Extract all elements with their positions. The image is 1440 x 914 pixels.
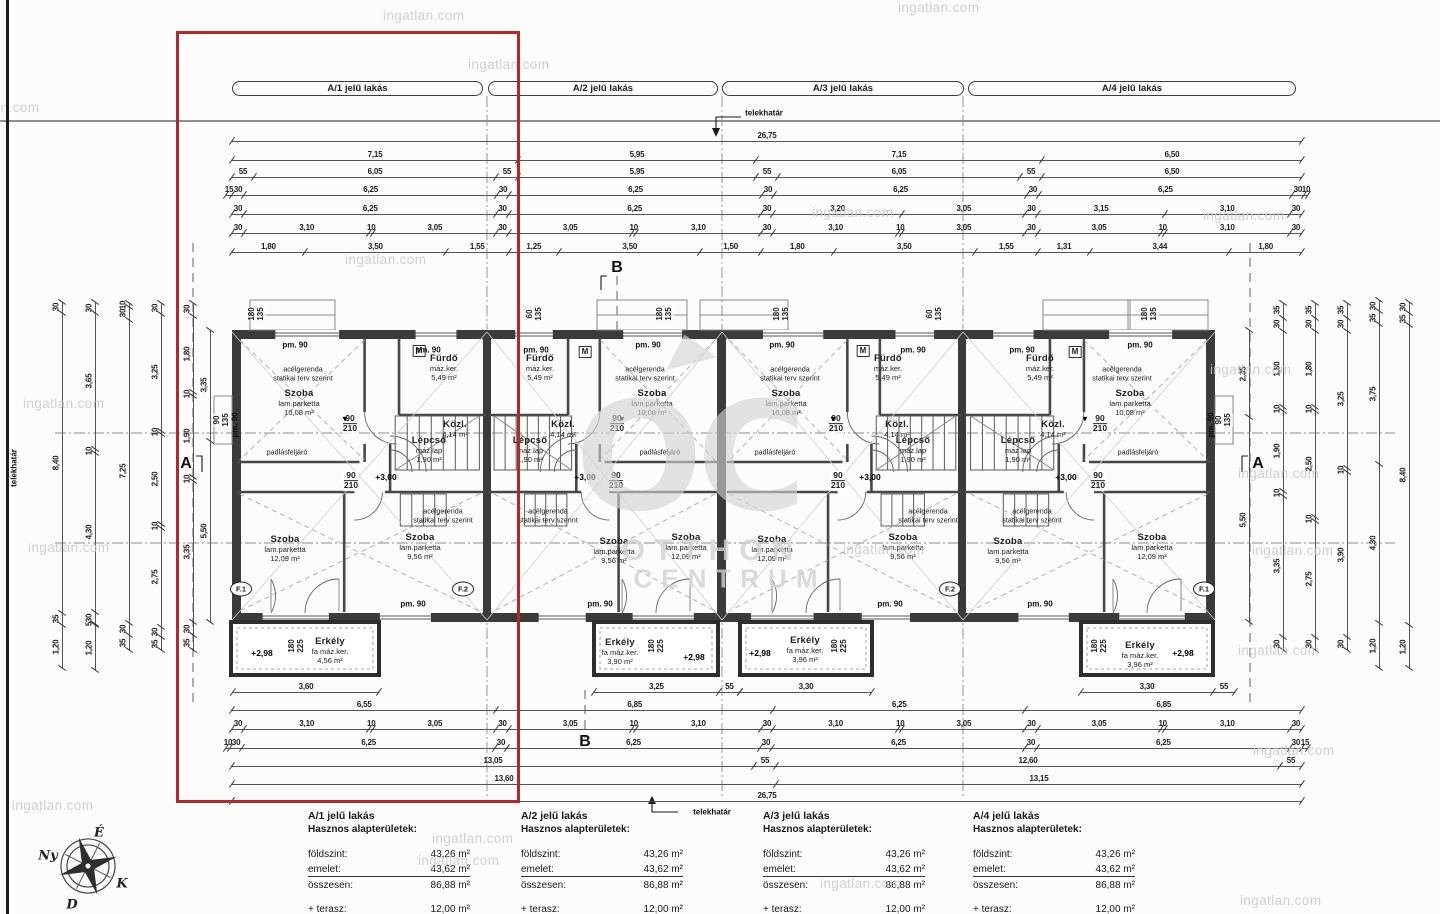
watermark-text: ingatlan.com — [1238, 466, 1319, 481]
dim-value: 30 — [151, 304, 160, 313]
section-marker: B — [579, 733, 591, 751]
dim-value: 26,75 — [757, 791, 776, 800]
dim-value: 55 — [725, 682, 734, 691]
property-line-label-top: telekhatár — [745, 109, 783, 118]
window-size-tag: 180225 — [1091, 639, 1109, 652]
legend-row-value: 12,00 m² — [431, 904, 470, 914]
unit-bar-label: A/2 jelű lakás — [489, 83, 717, 94]
dim-value: 10 — [1305, 405, 1314, 414]
room-label: Fürdőmáz.ker.5,49 m² — [874, 354, 902, 382]
stair-winder-arc — [1037, 450, 1059, 472]
dim-value: 10 — [1158, 223, 1167, 232]
room-label: Lépcsőmáz.lap1,90 m² — [1001, 436, 1035, 464]
dim-value: 30 — [1292, 204, 1301, 213]
dim-value: 8,40 — [52, 455, 61, 470]
window-size-tag: 180225 — [648, 639, 666, 652]
dim-value: 30 — [1029, 185, 1038, 194]
dim-value: 1,90 — [1273, 444, 1282, 459]
window-gap — [993, 330, 1033, 339]
compass-west-label: Ny — [38, 849, 57, 864]
dim-value: 2,75 — [1305, 572, 1314, 587]
legend-subtitle: Hasznos alapterületek: — [973, 824, 1135, 835]
stair-winder-arc — [871, 450, 893, 472]
highlight-unit-a1-box — [176, 31, 520, 803]
legend-row: + terasz:12,00 m² — [521, 904, 683, 914]
dim-value: 26,75 — [757, 131, 776, 140]
window-gap — [763, 330, 823, 339]
legend-row-key: földszint: — [973, 849, 1012, 860]
compass-north-label: É — [94, 826, 104, 841]
legend-row-key: földszint: — [308, 849, 347, 860]
dim-value: 30 — [1027, 738, 1036, 747]
legend-row-value: 43,26 m² — [886, 849, 925, 860]
legend-title: A/1 jelű lakás — [308, 810, 470, 822]
dim-value: 3,90 — [1337, 547, 1346, 562]
leader-arrow-icon — [648, 796, 656, 804]
balcony-door-arc — [622, 579, 627, 613]
legend-row-key: + terasz: — [521, 904, 560, 914]
property-line-label-bottom: telekhatár — [693, 808, 731, 817]
dim-line-vertical — [129, 303, 130, 650]
legend-row-value: 43,62 m² — [1096, 864, 1135, 875]
dim-value: 10 — [896, 223, 905, 232]
note-label: acélgerendastatikai terv szerint — [898, 507, 958, 524]
legend-block-a2: A/2 jelű lakásHasznos alapterületek:föld… — [521, 810, 683, 914]
legend-title: A/3 jelű lakás — [763, 810, 925, 822]
stair-winder-arc — [554, 450, 576, 472]
dim-value: 30 — [151, 628, 160, 637]
beam-arrow-icon: ▼ — [1081, 415, 1089, 424]
dim-line-vertical — [1409, 302, 1410, 668]
dim-value: 10 — [1273, 489, 1282, 498]
level-marker: +3,00 — [1055, 472, 1077, 482]
dim-value: 10 — [1302, 185, 1311, 194]
leader-arrow-icon — [712, 128, 720, 137]
legend-subtitle: Hasznos alapterületek: — [521, 824, 683, 835]
detail-marker: F.2 — [939, 582, 961, 597]
dim-value: 10 — [630, 719, 639, 728]
legend-row-value: 43,62 m² — [644, 864, 683, 875]
legend-row: + terasz:12,00 m² — [763, 904, 925, 914]
legend-row-key: összesen: — [308, 880, 353, 891]
dim-value: 5,95 — [630, 150, 645, 159]
dim-line-vertical — [95, 302, 96, 670]
legend-row: + terasz:12,00 m² — [973, 904, 1135, 914]
room-label: Fürdőmáz.ker.5,49 m² — [1026, 354, 1054, 382]
dim-value: 3,05 — [1092, 223, 1107, 232]
washer-tag: M — [1069, 346, 1082, 358]
dim-value: 30 — [1292, 719, 1301, 728]
room-label: Szobalam.parketta10,08 m² — [1109, 389, 1150, 417]
dim-value: 6,85 — [627, 700, 642, 709]
dim-value: 1,80 — [1258, 242, 1273, 251]
legend-row-value: 86,88 m² — [644, 880, 683, 891]
legend-title: A/2 jelű lakás — [521, 810, 683, 822]
dim-value: 3,25 — [151, 365, 160, 380]
dim-value: 6,25 — [1158, 185, 1173, 194]
room-label: Közl.4,14 m² — [550, 420, 575, 440]
lintel-tag: pm. 90 — [1009, 346, 1034, 355]
watermark-text: ingatlan.com — [1252, 543, 1333, 558]
note-label: padlásfeljáró — [1118, 449, 1159, 458]
dim-value: 6,25 — [627, 204, 642, 213]
dim-value: 3,10 — [1220, 719, 1235, 728]
legend-rows: földszint:43,26 m²emelet:43,62 m²összese… — [521, 849, 683, 914]
dim-value: 10 — [151, 522, 160, 531]
window-size-tag: 90135 — [1215, 413, 1233, 426]
legend-row: + terasz:12,00 m² — [308, 904, 470, 914]
dim-value: 35 — [1305, 306, 1314, 315]
legend-row: összesen:86,88 m² — [521, 880, 683, 892]
compass-east-label: K — [116, 877, 127, 892]
dim-value: 30 — [763, 719, 772, 728]
legend-subtitle: Hasznos alapterületek: — [763, 824, 925, 835]
window-size-tag: 60135 — [526, 307, 544, 320]
floorplan-sheet: OC OTTHON CENTRUM É Ny K D telekhatár te… — [0, 0, 1440, 914]
dim-value: 6,25 — [1156, 738, 1171, 747]
legend-block-a4: A/4 jelű lakásHasznos alapterületek:föld… — [973, 810, 1135, 914]
door-swing-arc — [1066, 492, 1094, 520]
legend-row-value: 12,00 m² — [1096, 904, 1135, 914]
legend-row: földszint:43,26 m² — [763, 849, 925, 861]
legend-row: földszint:43,26 m² — [521, 849, 683, 861]
dim-value: 3,30 — [799, 682, 814, 691]
watermark-text: ingatlan.com — [1210, 362, 1291, 377]
level-marker: +2,98 — [683, 652, 705, 662]
dim-value: 3,05 — [956, 719, 971, 728]
dim-value: 1,55 — [999, 242, 1014, 251]
dim-value: 1,50 — [723, 242, 738, 251]
legend-row: összesen:86,88 m² — [973, 880, 1135, 892]
dim-value: 30 — [85, 303, 94, 312]
watermark-text: ingatlan.com — [812, 205, 893, 220]
dim-value: 30 — [1027, 719, 1036, 728]
legend-row-key: + terasz: — [973, 904, 1012, 914]
dim-value: 55 — [1220, 682, 1229, 691]
dim-value: 30 — [1337, 639, 1346, 648]
photo-left-edge — [6, 0, 9, 914]
window-size-tag: 180135 — [1141, 307, 1159, 320]
dim-value: 3,65 — [85, 374, 94, 389]
dim-line-vertical — [1347, 303, 1348, 650]
dim-value: 1,20 — [1369, 638, 1378, 653]
window-gap — [515, 330, 553, 339]
legend-row-key: összesen: — [763, 880, 808, 891]
dim-value: 6,25 — [626, 738, 641, 747]
dim-value: 30 — [1292, 223, 1301, 232]
dim-value: 1,31 — [1057, 242, 1072, 251]
balcony-door-arc — [1113, 579, 1118, 613]
dim-value: 10 — [1273, 405, 1282, 414]
level-marker: +3,00 — [859, 472, 881, 482]
dim-value: 6,85 — [1156, 700, 1171, 709]
dim-value: 6,25 — [892, 700, 907, 709]
dim-value: 3,50 — [897, 242, 912, 251]
watermark-text: ingatlan.com — [28, 540, 109, 555]
lintel-tag: pm. 90 — [587, 600, 612, 609]
dim-value: 35 — [119, 638, 128, 647]
window-size-tag: 60135 — [926, 307, 944, 320]
room-label: Erkélyfa máz.ker.3,96 m² — [787, 636, 824, 664]
dim-value: 1,20 — [85, 640, 94, 655]
dim-value: 35 — [151, 639, 160, 648]
dim-value: 3,10 — [691, 719, 706, 728]
dim-value: 30 — [119, 309, 128, 318]
dim-line-vertical — [1379, 300, 1380, 668]
dim-value: 30 — [1027, 204, 1036, 213]
legend-row-key: összesen: — [521, 880, 566, 891]
window-gap — [1109, 330, 1172, 339]
unit-bar-a3: A/3 jelű lakás — [722, 81, 964, 96]
lintel-tag: pm. 90 — [523, 346, 548, 355]
room-label: Közl.4,14 m² — [1040, 420, 1065, 440]
note-label: acélgerendastatikai terv szerint — [1002, 507, 1062, 524]
dim-value: 30 — [1305, 320, 1314, 329]
dim-value: 1,20 — [52, 639, 61, 654]
door-swing-arc — [847, 412, 879, 444]
dim-value: 1,80 — [790, 242, 805, 251]
dim-value: 3,30 — [1140, 682, 1155, 691]
dim-value: 7,25 — [119, 464, 128, 479]
legend-row-key: + terasz: — [308, 904, 347, 914]
door-size-tag: 90210 — [1092, 414, 1108, 434]
watermark-text: ingatlan.com — [843, 542, 924, 557]
dim-value: 10 — [896, 719, 905, 728]
dim-value: 3,05 — [563, 719, 578, 728]
detail-marker: F.1 — [1193, 582, 1215, 597]
dim-value: 8,40 — [1399, 468, 1408, 483]
window-gap — [896, 330, 935, 339]
dim-value: 10 — [1337, 466, 1346, 475]
agency-logo-monogram: OC — [575, 371, 801, 545]
legend-row-key: földszint: — [763, 849, 802, 860]
dim-value: 13,15 — [1029, 774, 1048, 783]
dim-value: 1,20 — [1399, 639, 1408, 654]
watermark-text: ingatlan.com — [418, 853, 499, 868]
window-gap — [1018, 613, 1068, 622]
lintel-tag: pm. 90 — [877, 600, 902, 609]
dim-value: 6,25 — [628, 185, 643, 194]
dim-value: 6,25 — [893, 185, 908, 194]
watermark-text: ingatlan.com — [1253, 743, 1334, 758]
dim-value: 30 — [1337, 320, 1346, 329]
window-size-tag: 180225 — [831, 639, 849, 652]
watermark-text: ingatlan.com — [898, 0, 979, 15]
dim-value: 3,44 — [1152, 242, 1167, 251]
room-label: Fürdőmáz.ker.5,49 m² — [526, 354, 554, 382]
legend-row-value: 86,88 m² — [431, 880, 470, 891]
dim-value: 10 — [151, 428, 160, 437]
dim-value: 3,10 — [691, 223, 706, 232]
legend-row: emelet:43,62 m² — [973, 864, 1135, 877]
dim-value: 5,50 — [1239, 512, 1248, 527]
level-marker: +2,98 — [749, 648, 771, 658]
dim-value: 3,35 — [1273, 559, 1282, 574]
leader-line — [716, 117, 741, 131]
dim-value: 30 — [1273, 320, 1282, 329]
legend-row-key: földszint: — [521, 849, 560, 860]
dim-value: 6,50 — [1165, 167, 1180, 176]
dim-value: 12,60 — [1018, 756, 1037, 765]
window-size-tag: 180135 — [656, 307, 674, 320]
dim-line-vertical — [161, 303, 162, 650]
party-wall — [958, 330, 966, 622]
legend-row-value: 43,26 m² — [1096, 849, 1135, 860]
legend-row-value: 12,00 m² — [644, 904, 683, 914]
dim-value: 3,05 — [1092, 719, 1107, 728]
legend-block-a3: A/3 jelű lakásHasznos alapterületek:föld… — [763, 810, 925, 914]
lintel-tag: pm. 90 — [769, 341, 794, 350]
property-line-label-left: telekhatár — [10, 449, 19, 487]
legend-row-key: + terasz: — [763, 904, 802, 914]
note-label: acélgerendastatikai terv szerint — [518, 507, 578, 524]
unit-bar-label: A/3 jelű lakás — [723, 83, 963, 94]
legend-row-key: összesen: — [973, 880, 1018, 891]
dim-value: 30 — [1369, 301, 1378, 310]
dim-value: 30 — [762, 738, 771, 747]
dim-value: 35 — [1399, 315, 1408, 324]
legend-row-key: emelet: — [521, 864, 554, 875]
room-label: Szobalam.parketta12,09 m² — [1131, 533, 1172, 561]
legend-row-value: 12,00 m² — [886, 904, 925, 914]
window-gap — [539, 613, 586, 622]
level-marker: +2,98 — [1172, 648, 1194, 658]
door-size-tag: 90210 — [830, 471, 846, 491]
section-bracket — [601, 276, 607, 290]
room-label: Lépcsőmáz.lap1,90 m² — [896, 436, 930, 464]
watermark-text: ingatlan.com — [1240, 893, 1321, 908]
dim-value: 55 — [763, 167, 772, 176]
dim-value: 3,05 — [956, 223, 971, 232]
dim-value: 10 — [85, 446, 94, 455]
dim-value: 2,75 — [151, 570, 160, 585]
dim-value: 3,15 — [1094, 204, 1109, 213]
dim-value: 30 — [52, 303, 61, 312]
dim-value: 30 — [1399, 303, 1408, 312]
section-marker: B — [611, 259, 623, 277]
dim-value: 30 — [119, 625, 128, 634]
dim-value: 3,10 — [828, 223, 843, 232]
agency-logo-line2: CENTRUM — [634, 564, 827, 595]
legend-title: A/4 jelű lakás — [973, 810, 1135, 822]
legend-row: emelet:43,62 m² — [521, 864, 683, 877]
watermark-text: ingatlan.com — [12, 798, 93, 813]
window-size-tag: 180135 — [773, 307, 791, 320]
watermark-text: ingatlan.com — [820, 876, 901, 891]
legend-row-value: 43,62 m² — [886, 864, 925, 875]
dim-line — [740, 692, 872, 693]
lintel-tag: pm. 90 — [1127, 341, 1152, 350]
dim-value: 6,50 — [1165, 150, 1180, 159]
dim-value: 3,25 — [649, 682, 664, 691]
unit-bar-a2: A/2 jelű lakás — [488, 81, 718, 96]
dim-value: 5,95 — [630, 167, 645, 176]
room-label: Erkélyfa máz.ker.3,90 m² — [602, 638, 639, 666]
dim-value: 6,25 — [891, 738, 906, 747]
legend-row-value: 43,26 m² — [644, 849, 683, 860]
dim-value: 7,15 — [892, 150, 907, 159]
compass-south-label: D — [66, 898, 77, 913]
watermark-text: ingatlan.com — [1203, 208, 1284, 223]
dim-value: 3,05 — [956, 204, 971, 213]
dim-value: 10 — [1158, 719, 1167, 728]
legend-rows: földszint:43,26 m²emelet:43,62 m²összese… — [973, 849, 1135, 914]
dim-value: 55 — [1027, 167, 1036, 176]
dim-value: 35 — [1273, 306, 1282, 315]
dim-value: 30 — [1027, 223, 1036, 232]
legend-row-key: emelet: — [308, 864, 341, 875]
washer-tag: M — [857, 345, 870, 357]
lintel-tag: pm. 90 — [900, 346, 925, 355]
dim-value: 4,30 — [1369, 536, 1378, 551]
beam-arrow-icon: ▼ — [829, 415, 837, 424]
dim-value: 55 — [761, 756, 770, 765]
dim-value: 3,05 — [563, 223, 578, 232]
unit-bar-a4: A/4 jelű lakás — [968, 81, 1296, 96]
dim-value: 6,05 — [892, 167, 907, 176]
dim-value: 10 — [1305, 515, 1314, 524]
dim-value: 3,75 — [1369, 386, 1378, 401]
door-swing-arc — [838, 492, 866, 520]
dim-value: 35 — [52, 615, 61, 624]
watermark-text: ingatlan.com — [23, 396, 104, 411]
dim-value: 30 — [764, 185, 773, 194]
watermark-text: ingatlan.com — [1238, 643, 1319, 658]
dim-value: 30 — [763, 223, 772, 232]
legend-row: összesen:86,88 m² — [308, 880, 470, 892]
washer-tag: M — [579, 346, 592, 358]
dim-value: 2,50 — [151, 472, 160, 487]
dim-value: 5 — [85, 622, 94, 626]
lintel-tag: pm. 90 — [635, 341, 660, 350]
dim-value: 35 — [1369, 313, 1378, 322]
lintel-tag: pm. 90 — [1027, 600, 1052, 609]
legend-row: földszint:43,26 m² — [973, 849, 1135, 861]
unit-bar-label: A/4 jelű lakás — [969, 83, 1295, 94]
dim-value: 1,25 — [526, 242, 541, 251]
note-label: acélgerendastatikai terv szerint — [1092, 365, 1152, 382]
dim-value: 30 — [763, 204, 772, 213]
dim-value: 3,10 — [828, 719, 843, 728]
door-size-tag: 90210 — [1090, 471, 1106, 491]
room-label: Szobalam.parketta9,56 m² — [987, 537, 1028, 565]
dim-value: 35 — [1337, 306, 1346, 315]
dim-value: 3,25 — [1337, 392, 1346, 407]
dim-value: 10 — [630, 223, 639, 232]
room-label: Erkélyfa máz.ker.3,96 m² — [1122, 641, 1159, 669]
legend-row-value: 86,88 m² — [1096, 880, 1135, 891]
watermark-text: ingatlan.com — [383, 8, 464, 23]
dim-value: 4,30 — [85, 525, 94, 540]
dim-value: 3,10 — [1220, 223, 1235, 232]
legend-row-key: emelet: — [763, 864, 796, 875]
dim-value: 1,80 — [1305, 361, 1314, 376]
watermark-text: ingatlan.com — [432, 831, 513, 846]
legend-row-key: emelet: — [973, 864, 1006, 875]
dim-value: 3,50 — [622, 242, 637, 251]
